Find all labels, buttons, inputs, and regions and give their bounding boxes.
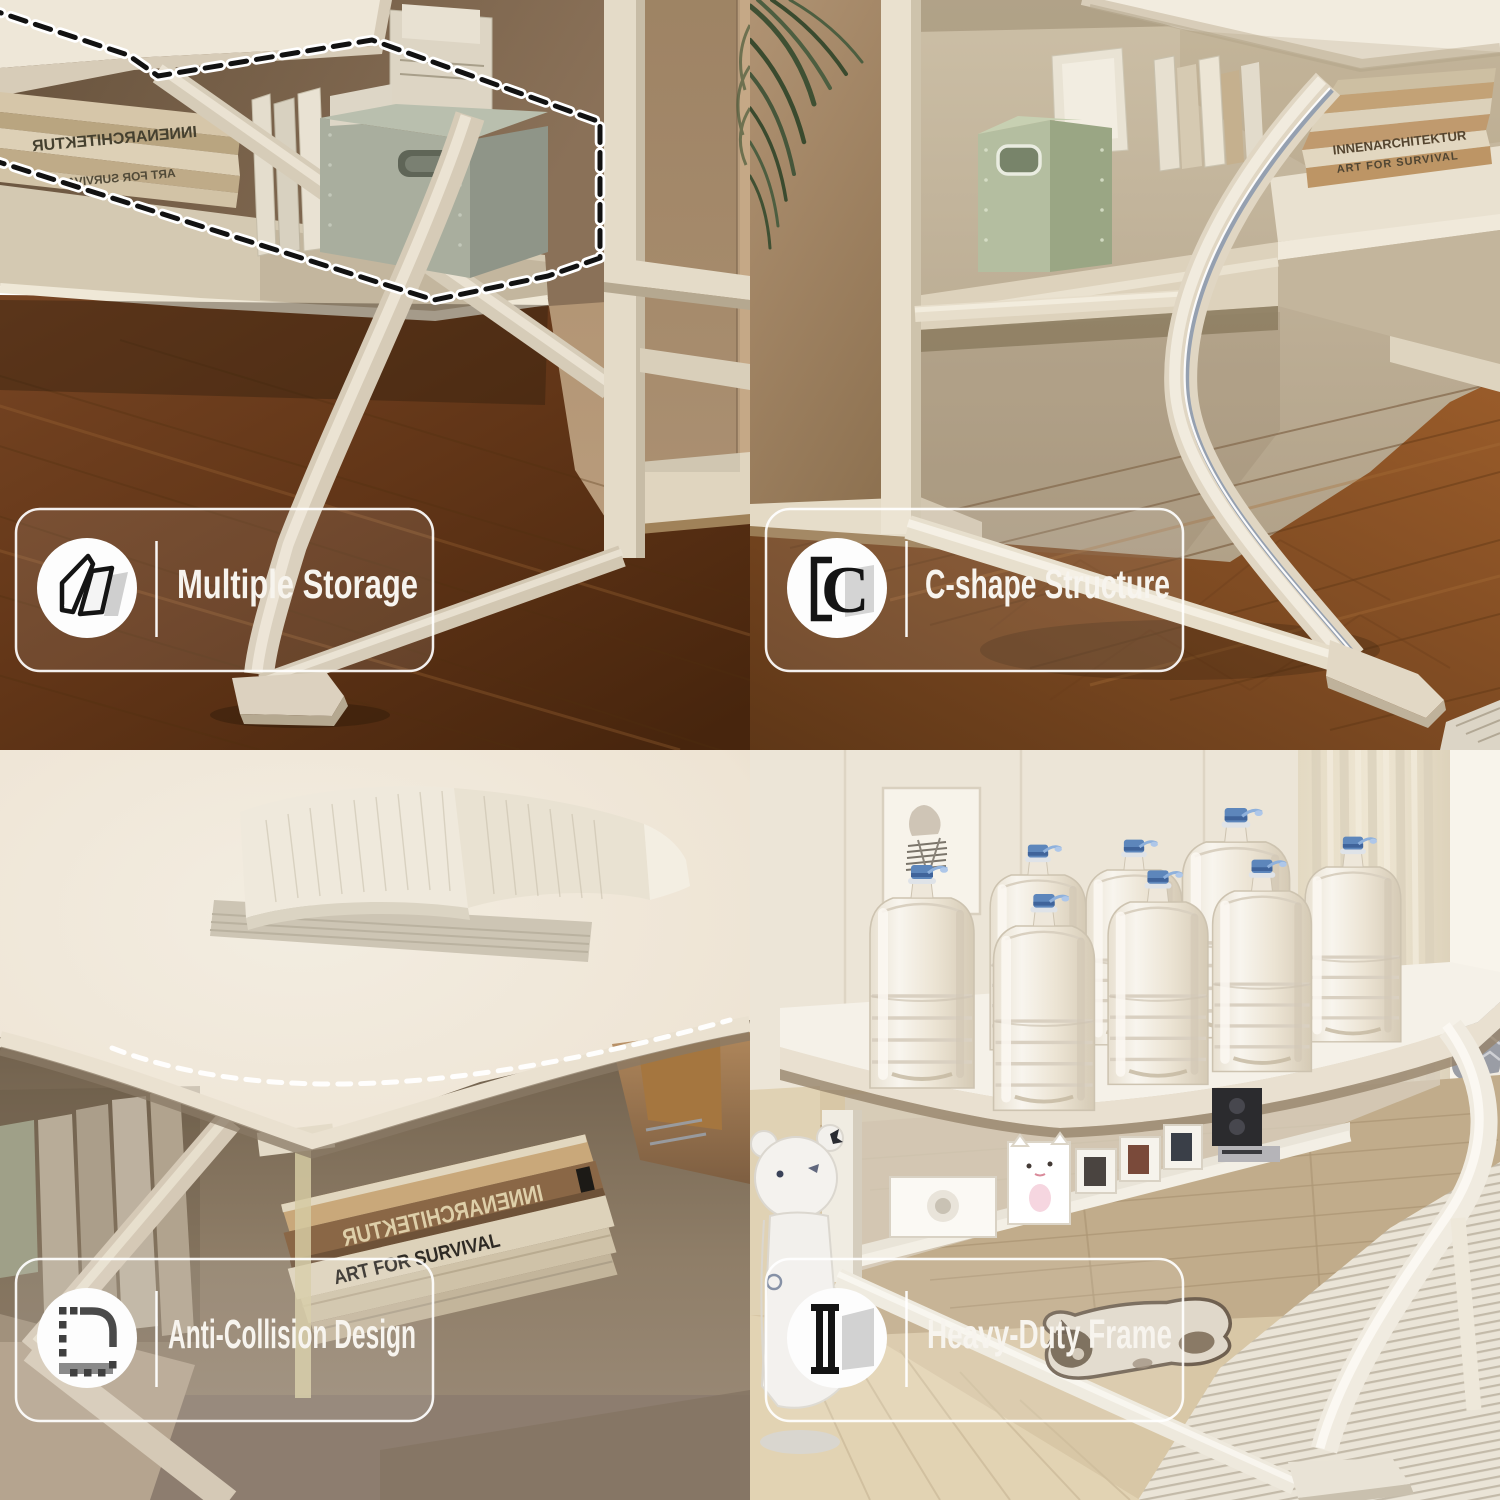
svg-text:Heavy-Duty Frame: Heavy-Duty Frame xyxy=(927,1311,1172,1357)
svg-text:C-shape Structure: C-shape Structure xyxy=(925,561,1170,607)
svg-text:Anti-Collision Design: Anti-Collision Design xyxy=(168,1311,416,1357)
svg-text:Multiple Storage: Multiple Storage xyxy=(177,561,418,607)
svg-text:C: C xyxy=(821,553,869,627)
